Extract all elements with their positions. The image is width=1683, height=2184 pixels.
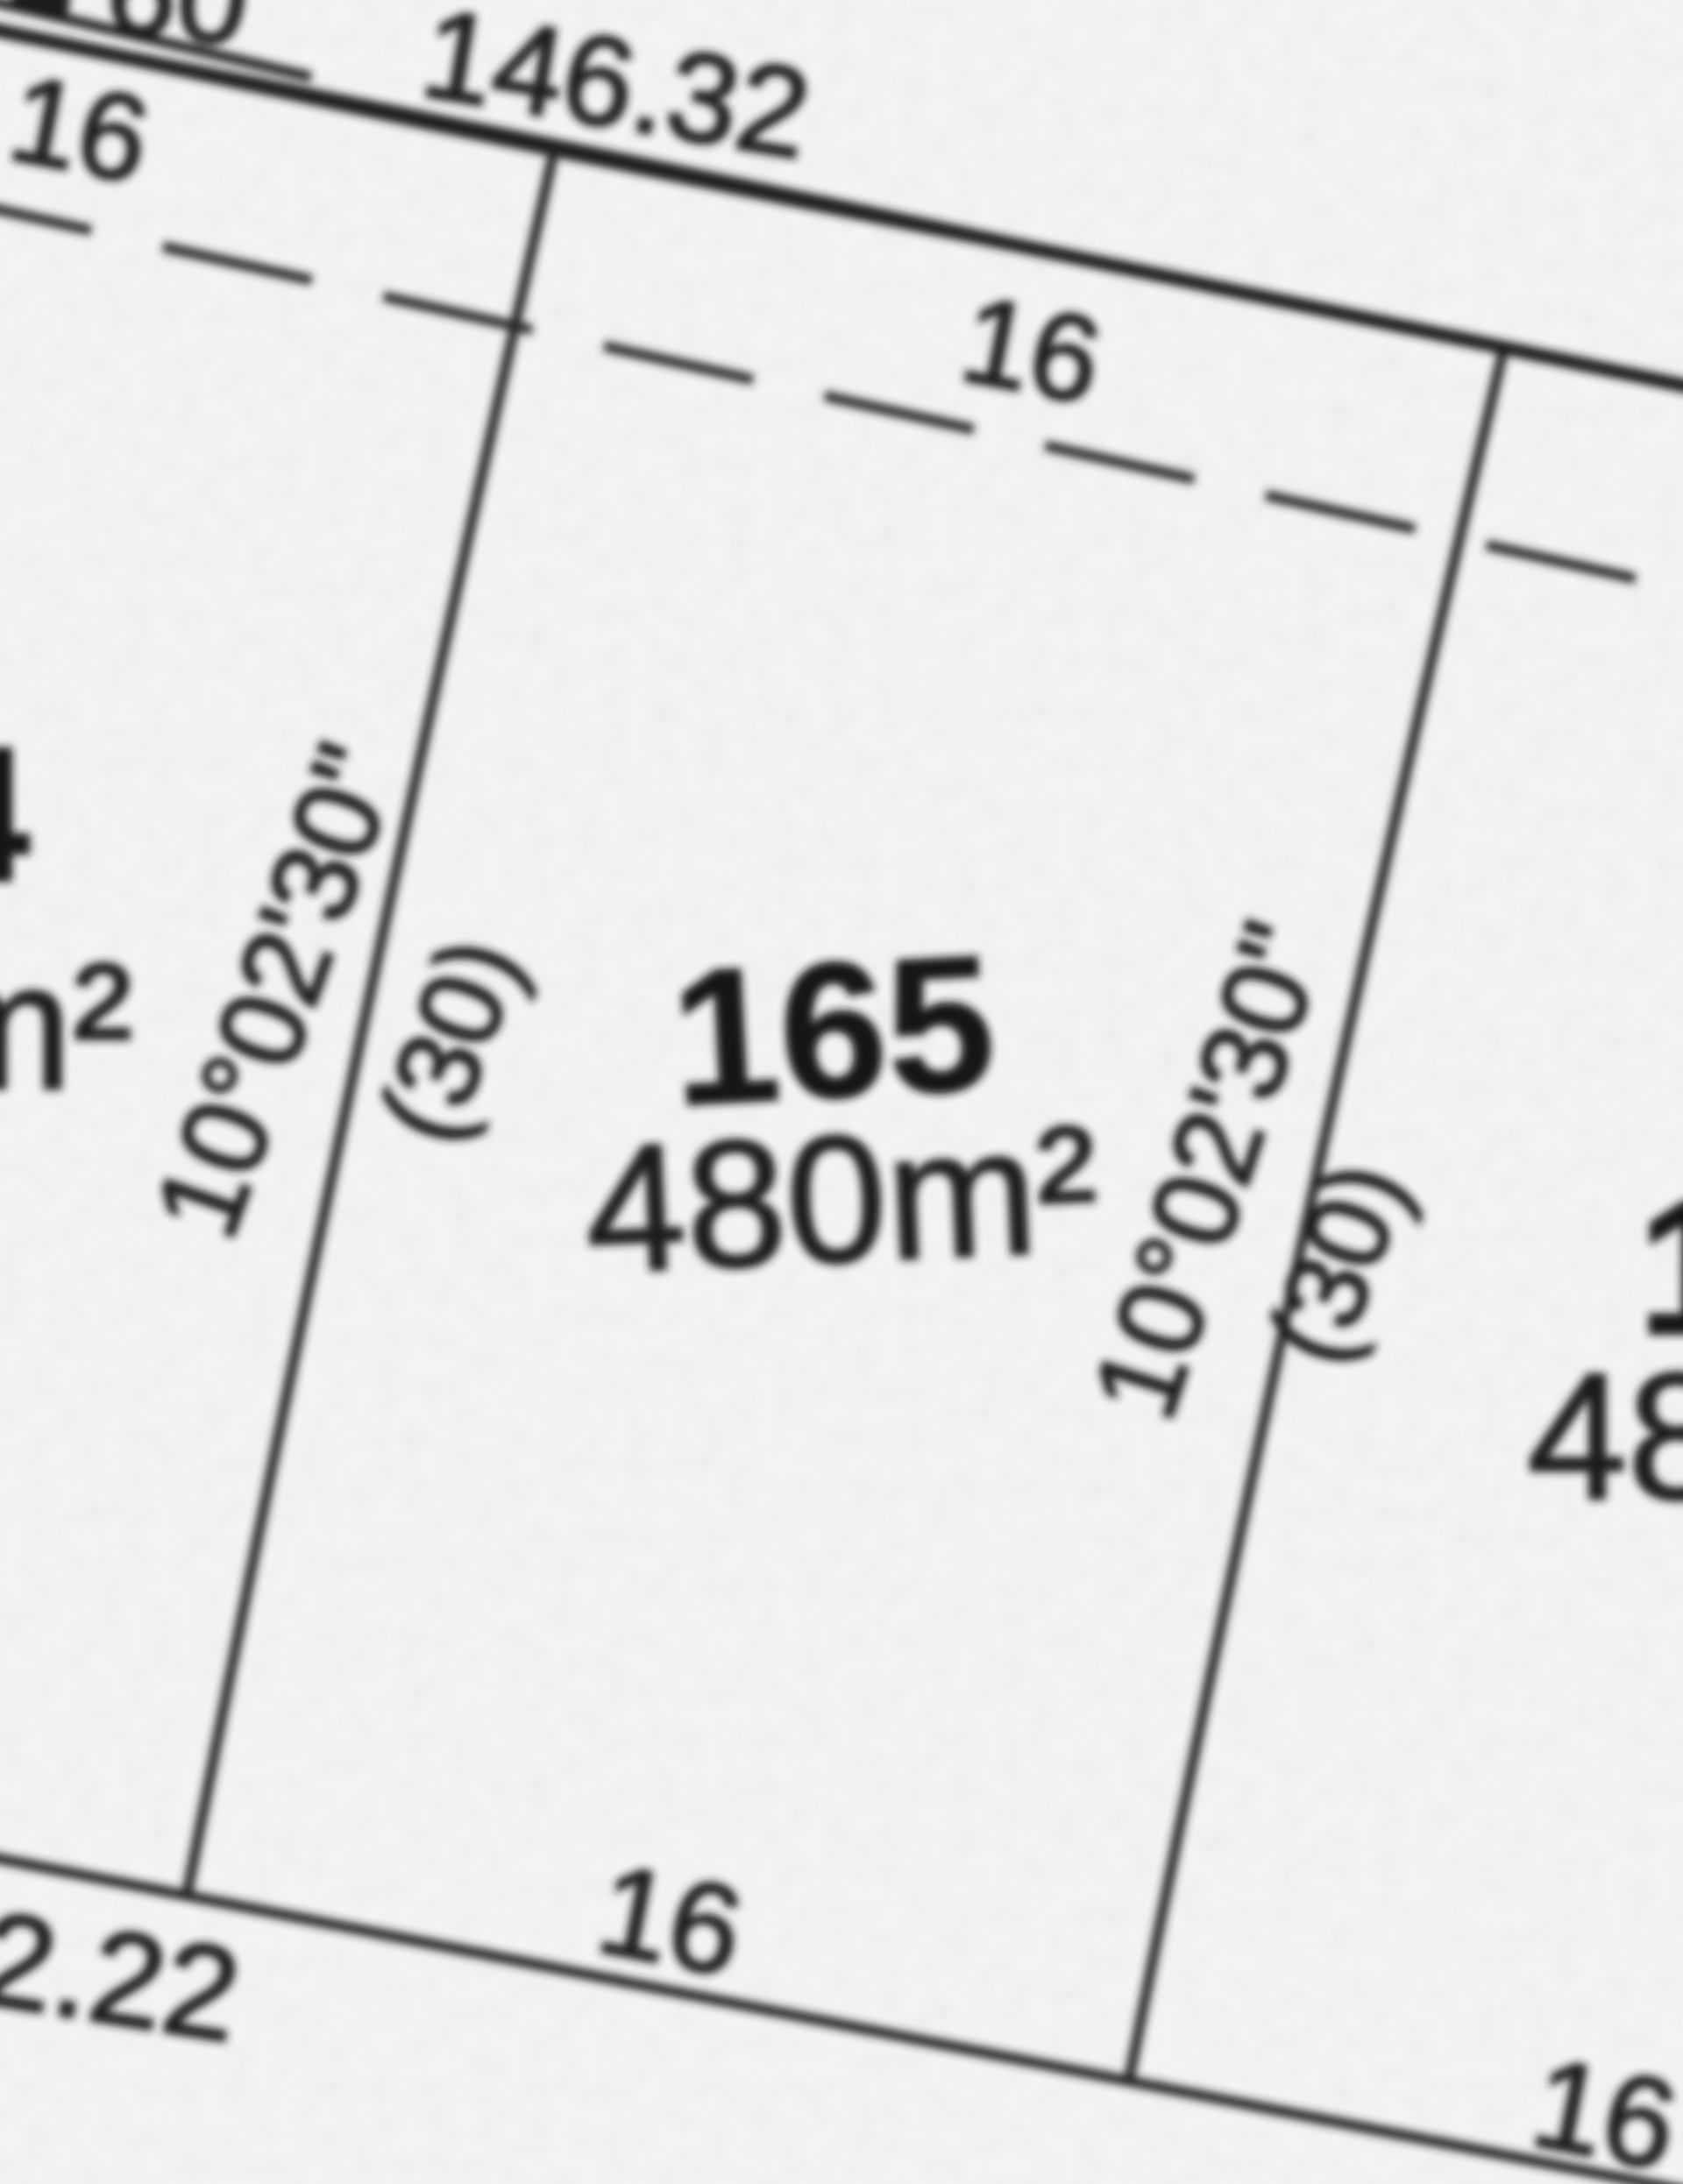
svg-text:480m²: 480m² [581,1088,1101,1311]
svg-text:m²: m² [0,925,132,1127]
svg-text:16: 16 [951,269,1111,430]
svg-text:16: 16 [587,1837,753,2003]
svg-text:4: 4 [0,706,30,922]
svg-text:16: 16 [1522,2031,1683,2184]
svg-text:16: 16 [0,48,160,209]
svg-text:480m²: 480m² [1527,1336,1683,1537]
